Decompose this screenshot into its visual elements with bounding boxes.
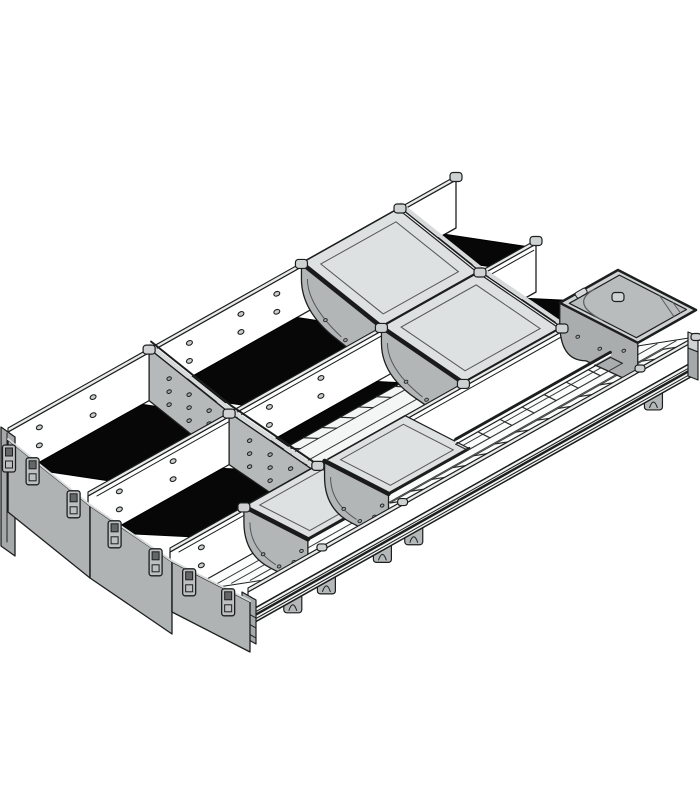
drawer-organizer-drawing bbox=[0, 0, 700, 800]
page: Isometric technical line drawing of a dr… bbox=[0, 0, 700, 800]
product-illustration bbox=[0, 0, 700, 800]
